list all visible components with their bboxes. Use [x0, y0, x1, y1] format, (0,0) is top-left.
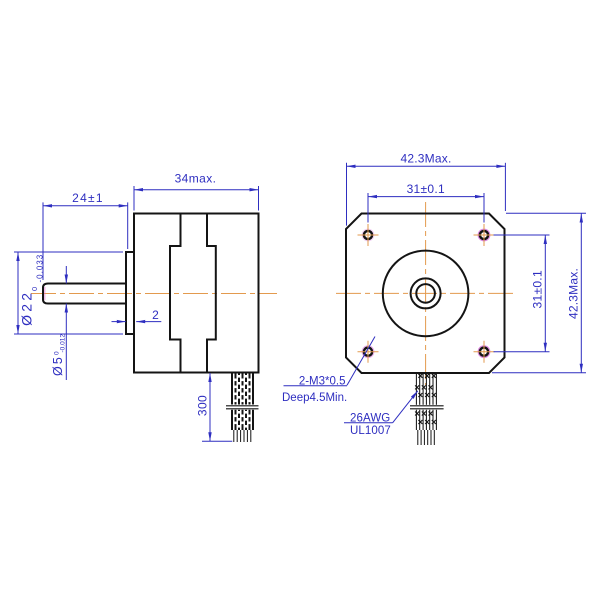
svg-text:26AWG: 26AWG — [350, 413, 390, 425]
svg-text:-0.033: -0.033 — [36, 254, 45, 283]
svg-text:2: 2 — [152, 308, 159, 322]
svg-text:2-M3*0.5: 2-M3*0.5 — [299, 375, 346, 387]
svg-text:0: 0 — [30, 287, 39, 291]
svg-text:Ø22: Ø22 — [19, 290, 35, 326]
svg-text:UL1007: UL1007 — [350, 425, 391, 437]
svg-text:Ø5: Ø5 — [51, 355, 65, 376]
svg-text:42.3Max.: 42.3Max. — [401, 151, 452, 165]
svg-text:300: 300 — [196, 395, 210, 416]
svg-text:42.3Max.: 42.3Max. — [567, 268, 581, 319]
svg-text:31±0.1: 31±0.1 — [531, 270, 545, 308]
svg-text:31±0.1: 31±0.1 — [407, 182, 445, 196]
svg-text:-0.012: -0.012 — [60, 334, 67, 353]
svg-text:24±1: 24±1 — [72, 191, 104, 205]
svg-text:Deep4.5Min.: Deep4.5Min. — [282, 392, 347, 404]
svg-text:34max.: 34max. — [175, 172, 217, 186]
